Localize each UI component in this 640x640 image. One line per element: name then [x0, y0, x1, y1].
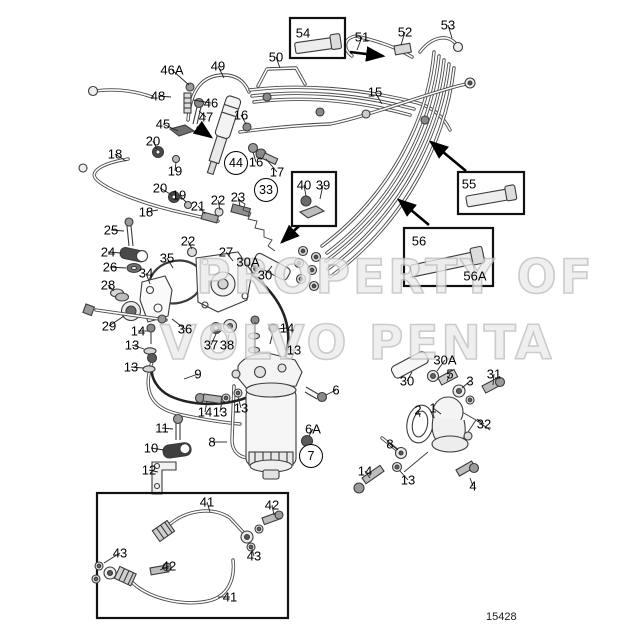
part-label-10: 10 — [144, 442, 158, 455]
part-label-3: 3 — [466, 375, 473, 388]
part-label-38: 38 — [220, 339, 234, 352]
part-label-44: 44 — [224, 151, 248, 175]
part-label-6A: 6A — [305, 423, 321, 436]
part-label-13: 13 — [287, 344, 301, 357]
part-label-50: 50 — [269, 51, 283, 64]
part-label-13: 13 — [213, 406, 227, 419]
part-label-42: 42 — [162, 560, 176, 573]
part-label-5: 5 — [446, 368, 453, 381]
part-label-46: 46 — [204, 97, 218, 110]
part-label-23: 23 — [231, 191, 245, 204]
part-label-15: 15 — [368, 86, 382, 99]
part-label-11: 11 — [155, 422, 169, 435]
part-label-34: 34 — [139, 267, 153, 280]
part-label-41: 41 — [200, 496, 214, 509]
part-label-18: 18 — [139, 206, 153, 219]
part-label-13: 13 — [401, 474, 415, 487]
part-label-27: 27 — [219, 246, 233, 259]
pipe-end-fittings — [295, 247, 321, 291]
part-label-7: 7 — [299, 444, 323, 468]
part-label-43: 43 — [247, 550, 261, 563]
part-label-4: 4 — [469, 480, 476, 493]
part-label-45: 45 — [156, 118, 170, 131]
part-label-42: 42 — [265, 499, 279, 512]
part-label-40: 40 — [297, 179, 311, 192]
part-label-8: 8 — [386, 438, 393, 451]
part-label-14: 14 — [131, 325, 145, 338]
part-label-26: 26 — [103, 261, 117, 274]
part-label-20: 20 — [153, 182, 167, 195]
part-label-20: 20 — [146, 135, 160, 148]
part-label-2: 2 — [414, 404, 421, 417]
part-label-36: 36 — [178, 323, 192, 336]
part-label-14: 14 — [280, 322, 294, 335]
part-label-37: 37 — [204, 339, 218, 352]
part-label-6: 6 — [332, 384, 339, 397]
part-label-28: 28 — [101, 279, 115, 292]
part-label-19: 19 — [168, 165, 182, 178]
part-label-25: 25 — [104, 224, 118, 237]
part-label-56A: 56A — [463, 270, 486, 283]
part-label-24: 24 — [101, 246, 115, 259]
part-label-21: 21 — [191, 200, 205, 213]
part-label-48: 48 — [151, 90, 165, 103]
part-label-35: 35 — [160, 252, 174, 265]
part-label-17: 17 — [270, 166, 284, 179]
part-label-16: 16 — [249, 156, 263, 169]
part-label-13: 13 — [124, 361, 138, 374]
parts-diagram-page: PROPERTY OF VOLVO PENTA 46A4849505451525… — [0, 0, 640, 640]
part-label-12: 12 — [142, 464, 156, 477]
part-label-13: 13 — [125, 339, 139, 352]
part-label-18: 18 — [108, 148, 122, 161]
part-label-46A: 46A — [160, 64, 183, 77]
part-label-14: 14 — [358, 465, 372, 478]
part-label-8: 8 — [208, 436, 215, 449]
part-label-30: 30 — [400, 375, 414, 388]
part-label-39: 39 — [316, 179, 330, 192]
part-label-13: 13 — [234, 402, 248, 415]
part-label-52: 52 — [398, 26, 412, 39]
part-label-54: 54 — [296, 27, 310, 40]
part-label-30A: 30A — [433, 354, 456, 367]
part-label-22: 22 — [181, 235, 195, 248]
part-label-33: 33 — [254, 178, 278, 202]
part-label-51: 51 — [355, 31, 369, 44]
part-label-32: 32 — [477, 418, 491, 431]
part-label-1: 1 — [429, 402, 436, 415]
part-label-30: 30 — [258, 269, 272, 282]
part-label-49: 49 — [211, 60, 225, 73]
part-label-55: 55 — [462, 178, 476, 191]
part-label-19: 19 — [172, 189, 186, 202]
part-label-16: 16 — [234, 109, 248, 122]
part-label-31: 31 — [487, 368, 501, 381]
drawing-number: 15428 — [486, 611, 517, 623]
part-label-53: 53 — [441, 19, 455, 32]
part-label-9: 9 — [194, 368, 201, 381]
part-label-56: 56 — [412, 235, 426, 248]
part-label-41: 41 — [223, 591, 237, 604]
part-label-22: 22 — [211, 194, 225, 207]
part-label-43: 43 — [113, 547, 127, 560]
part-label-30A: 30A — [236, 256, 259, 269]
part-label-47: 47 — [199, 111, 213, 124]
part-label-14: 14 — [198, 406, 212, 419]
part-label-29: 29 — [102, 320, 116, 333]
exploded-view-drawing — [0, 0, 640, 640]
